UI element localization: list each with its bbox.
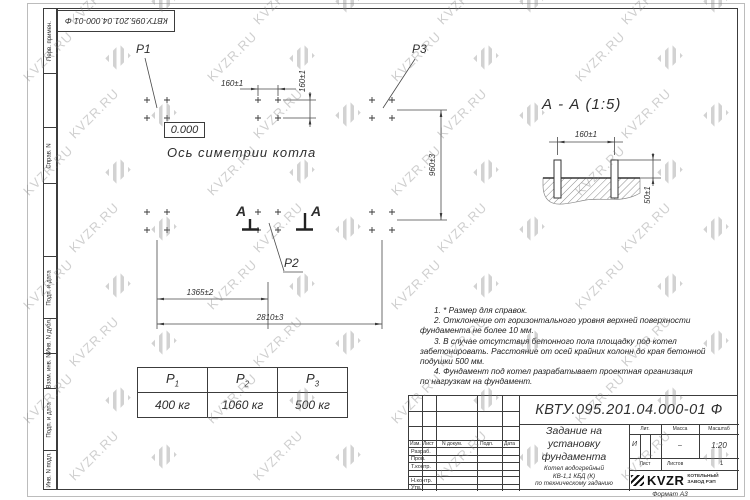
col-podp-label: Подп. [480,441,493,447]
row-tkontr-label: Т.контр. [411,464,431,470]
col-doc-label: N докум. [442,441,462,447]
loads-header-p2: P2 [208,368,278,393]
drawing-title-line: установку [521,438,627,451]
product-name-line: по техническому заданию [521,480,627,488]
kvzr-logo-icon [631,475,644,486]
mass-value: – [661,442,699,449]
note-line: подушки 500 мм. [420,357,738,367]
cut-letter-right: А [311,203,321,219]
loads-header-p1: P1 [138,368,208,393]
title-block: Изм. Лист N докум. Подп. Дата Разраб. Пр… [408,395,738,490]
plan-centerlines [140,88,586,305]
note-line: 3. В случае отсутствия бетонного пола пл… [420,337,738,347]
dim-half-length: 1365±2 [170,288,230,297]
loads-table-value-row: 400 кг 1060 кг 500 кг [138,393,348,418]
company-logo: KVZR КОТЕЛЬНЫЙ ЗАВОД РЭП [631,470,737,490]
load-point-p3-label: P3 [412,42,427,56]
dim-section-bolt-height: 50±1 [643,177,653,213]
col-data-label: Дата [504,441,515,447]
gridline [409,411,519,412]
sheets-label: Листов [667,461,683,467]
scale-label: Масштаб [699,426,739,432]
note-line: фундамента не более 10 мм. [420,326,738,336]
note-line: забетонировать. Расстояние от осей крайн… [420,347,738,357]
anchor-bolt-marks [144,97,395,233]
note-line: по нагрузкам на фундамент. [420,377,738,387]
dim-plan-height: 960±3 [428,147,438,183]
note-line: 1. * Размер для справок. [420,306,738,316]
note-line: 2. Отклонение от горизонтального уровня … [420,316,738,326]
technical-notes: 1. * Размер для справок. 2. Отклонение о… [420,306,738,388]
lit-value: И [629,441,640,448]
gridline [409,470,519,471]
col-list-label: Лист [423,441,434,447]
product-name: Котел водогрейный КВ-1,1 КБД (К) по техн… [521,465,627,488]
section-bolt-left [554,160,561,198]
gridline [629,434,739,435]
gridline [409,484,519,485]
gridline [629,458,739,459]
dim-bolt-spacing-y: 160±1 [298,63,308,99]
mass-label: Масса [661,426,699,432]
kvzr-logo-text: KVZR [647,473,684,488]
leader-lines [145,58,415,272]
row-prov-label: Пров. [411,456,426,462]
loads-value-p1: 400 кг [138,393,208,418]
format-label: Формат А3 [640,491,700,498]
dim-bolt-spacing-x: 160±1 [221,79,243,88]
load-point-p1-label: P1 [136,42,151,56]
gridline [409,426,519,427]
row-razrab-label: Разраб. [411,449,431,455]
dimension-arrows [157,88,654,326]
section-view-title: А - А (1:5) [542,96,621,113]
loads-value-p3: 500 кг [278,393,348,418]
dimension-lines [157,85,661,329]
kvzr-logo-caption-line: ЗАВОД РЭП [687,480,718,486]
scale-value: 1:20 [699,441,739,450]
gridline [640,434,641,458]
dim-full-length: 2810±3 [240,313,300,322]
sheet-label: Лист [629,461,661,467]
product-name-line: Котел водогрейный [521,465,627,473]
note-line: 4. Фундамент под котел разрабатывает про… [420,367,738,377]
loads-table: P1 P2 P3 400 кг 1060 кг 500 кг [137,367,348,418]
elevation-mark: 0.000 [164,122,205,138]
drawing-title-line: фундамента [521,451,627,464]
top-reference-stamp: КВТУ.095.201.04.000-01 Ф [57,10,175,32]
sheets-value: 1 [709,461,734,467]
drawing-title-line: Задание на [521,425,627,438]
col-izm-label: Изм. [410,441,421,447]
kvzr-logo-caption: КОТЕЛЬНЫЙ ЗАВОД РЭП [687,474,718,485]
drawing-title: Задание на установку фундамента [521,425,627,464]
lit-label: Лит. [629,426,661,432]
row-utv-label: Утв. [411,485,421,491]
section-cut-marks [242,213,313,230]
gridline [650,434,651,458]
top-stamp-number: КВТУ.095.201.04.000-01 Ф [65,16,168,26]
loads-value-p2: 1060 кг [208,393,278,418]
cut-letter-left: А [236,203,246,219]
dim-section-bolt-spacing: 160±1 [566,130,606,139]
load-point-p2-label: P2 [284,256,299,270]
row-nkontr-label: Н.контр. [411,478,432,484]
document-number: КВТУ.095.201.04.000-01 Ф [521,398,737,422]
drawing-sheet: { "page": { "format_label": "Формат А3" … [0,0,750,500]
loads-header-p3: P3 [278,368,348,393]
section-bolt-right [611,160,618,198]
loads-table-header-row: P1 P2 P3 [138,368,348,393]
gridline [519,396,520,491]
boiler-axis-label: Ось симетрии котла [167,145,316,160]
